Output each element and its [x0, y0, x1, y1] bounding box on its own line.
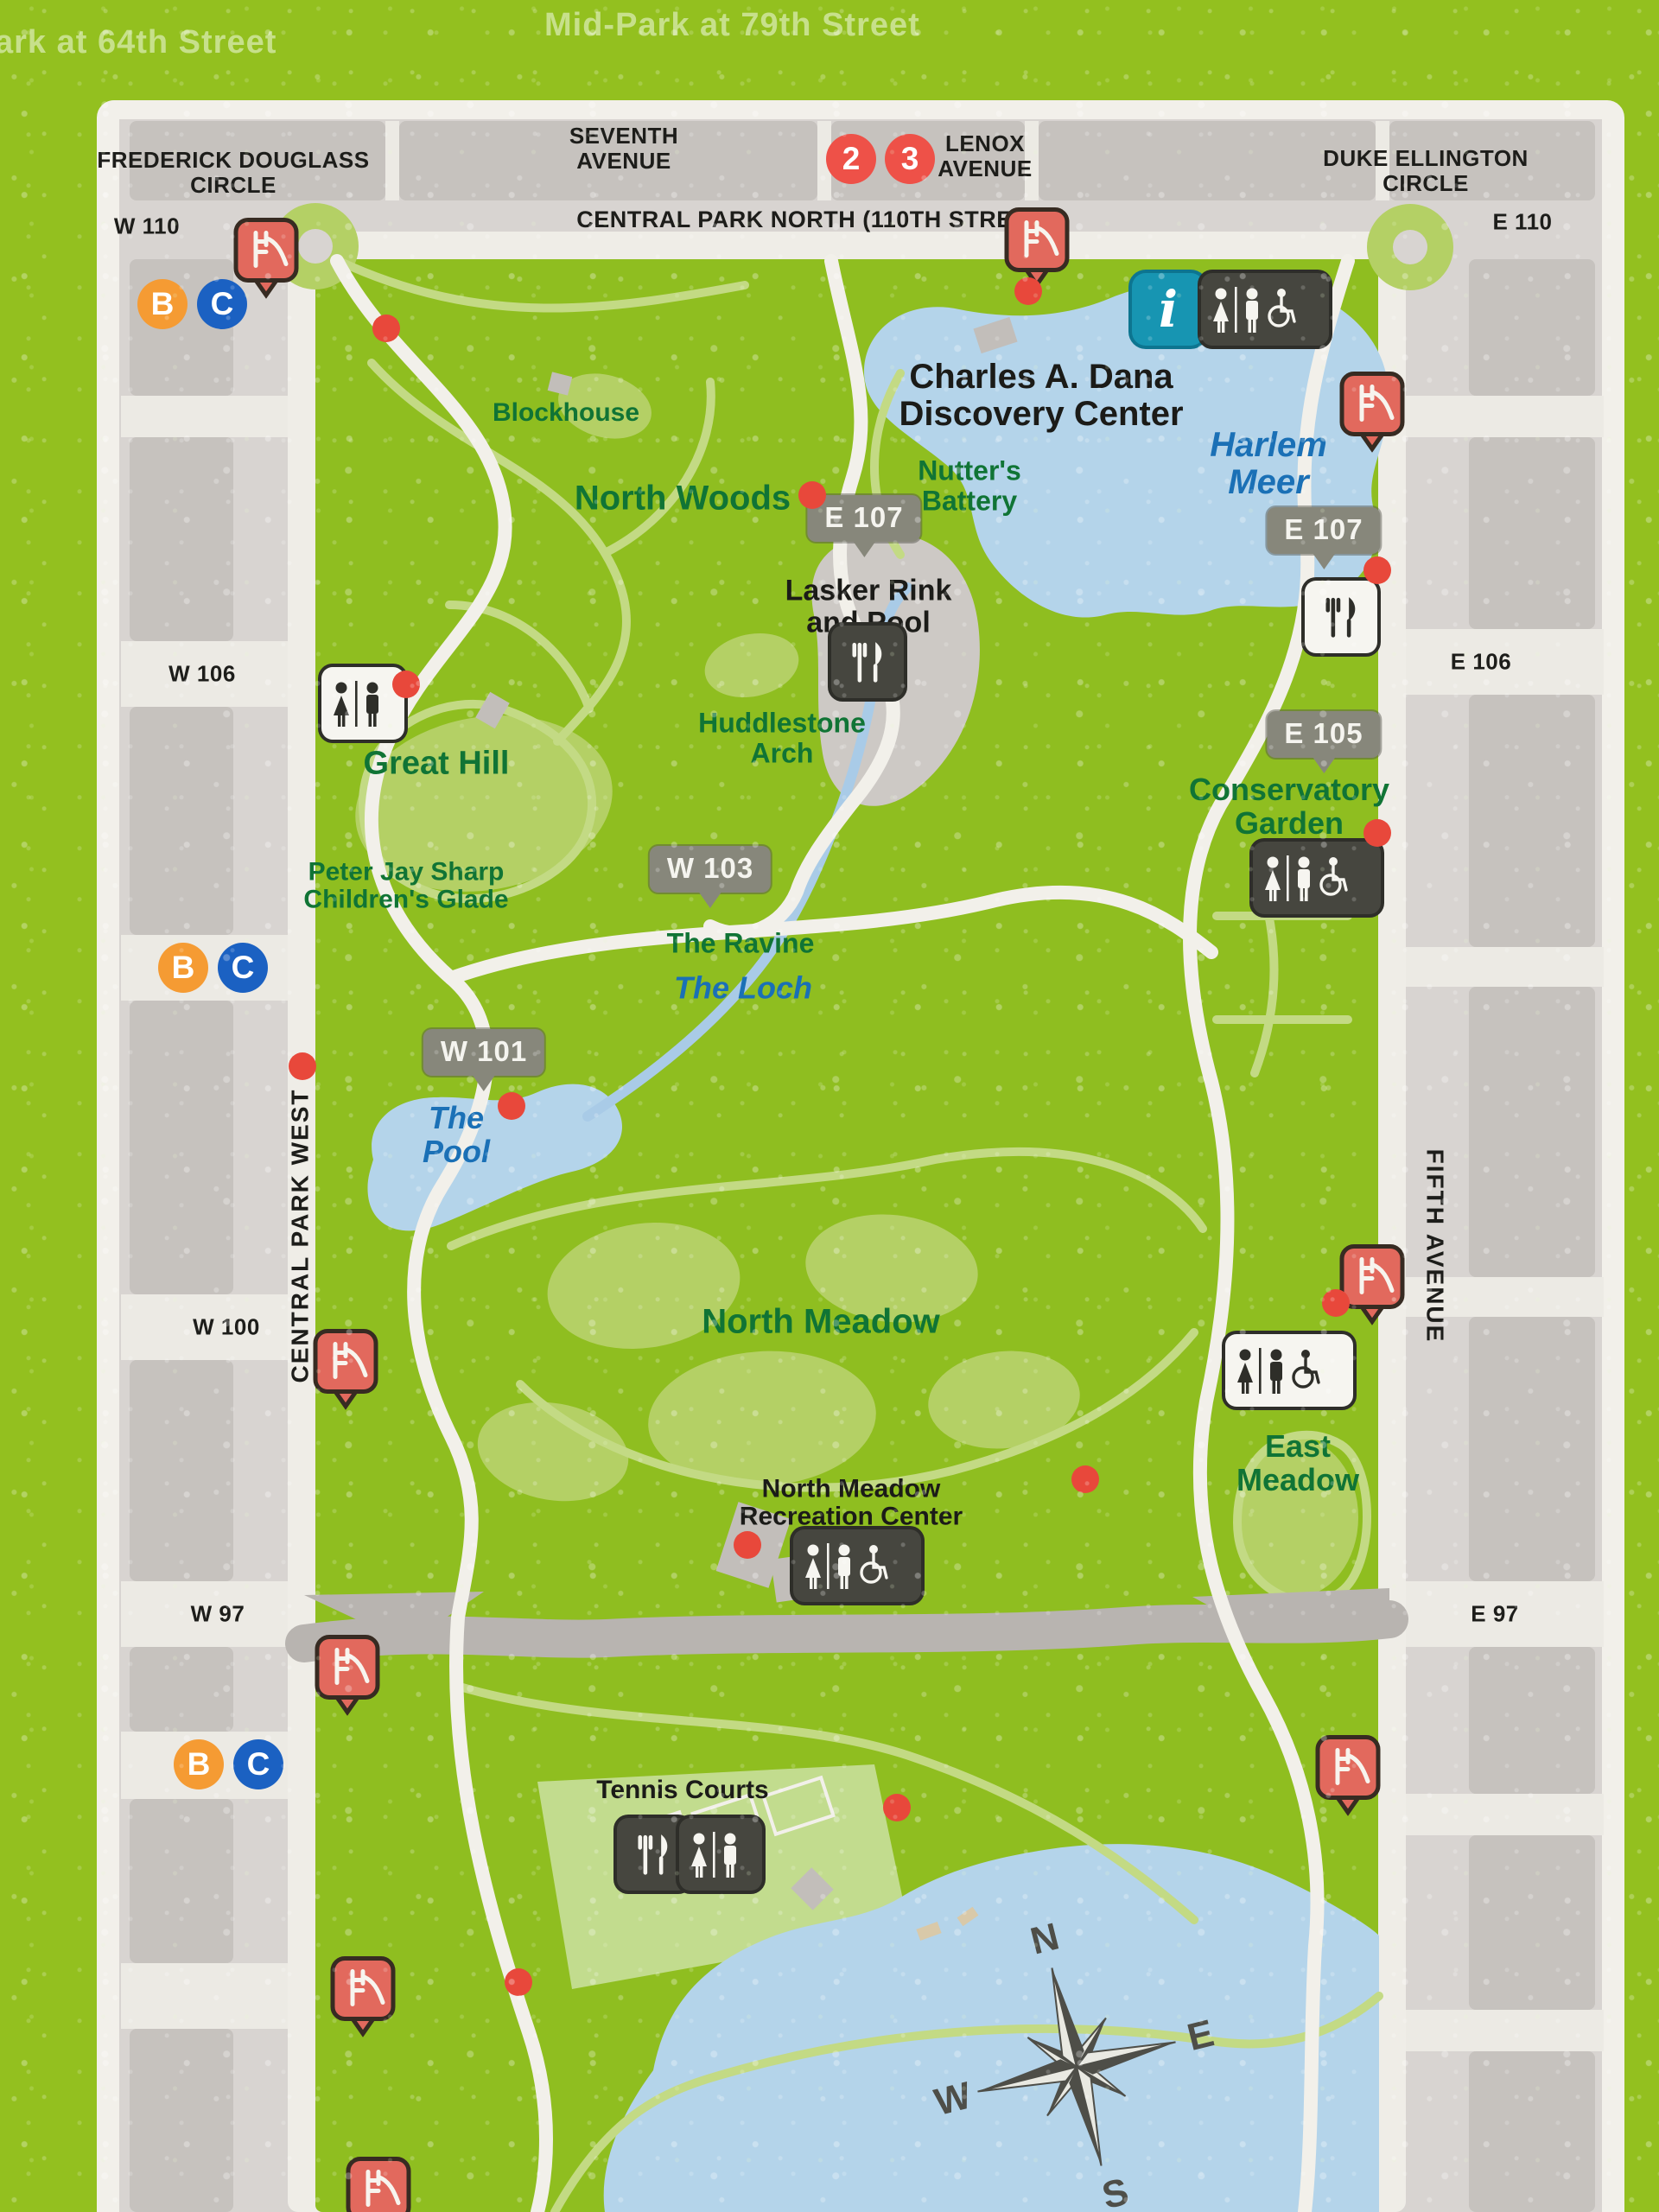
feature-label: North Meadow — [702, 1303, 940, 1340]
svg-text:S: S — [1098, 2171, 1133, 2212]
restroom-icon — [1225, 1334, 1353, 1407]
poi-red-dot — [505, 1968, 532, 1996]
svg-text:E: E — [1183, 2012, 1217, 2059]
playground-icon — [344, 2155, 413, 2212]
street-label: E 110 — [1492, 209, 1552, 234]
street-label: LENOX AVENUE — [938, 131, 1032, 181]
restroom-icon — [793, 1529, 921, 1602]
playground-icon — [311, 1327, 380, 1414]
poi-red-dot — [1014, 277, 1042, 305]
street-label: E 106 — [1451, 649, 1511, 674]
playground-icon — [1002, 206, 1071, 293]
restroom-icon — [679, 1818, 762, 1891]
feature-label: Great Hill — [364, 746, 510, 781]
street-label: FREDERICK DOUGLASS CIRCLE — [97, 148, 369, 198]
street-label: FIFTH AVENUE — [1421, 1149, 1448, 1344]
subway-badge-2: 2 — [826, 134, 876, 184]
street-label: W 100 — [193, 1314, 260, 1339]
street-entrance-pin: W 103 — [650, 846, 771, 893]
feature-label: East Meadow — [1236, 1430, 1359, 1497]
poi-red-dot — [1322, 1289, 1350, 1317]
subway-badge-b: B — [174, 1739, 224, 1789]
poi-red-dot — [372, 315, 400, 342]
street-label: E 97 — [1471, 1601, 1519, 1626]
poi-red-dot — [798, 481, 826, 509]
feature-label: North Meadow Recreation Center — [740, 1476, 963, 1532]
playground-icon — [1338, 370, 1407, 457]
poi-red-dot — [734, 1531, 761, 1559]
feature-label: Charles A. Dana Discovery Center — [899, 359, 1183, 433]
feature-label: The Ravine — [667, 929, 815, 959]
feature-label: Blockhouse — [493, 399, 639, 427]
info-icon: i — [1132, 273, 1205, 346]
poi-red-dot — [883, 1794, 911, 1821]
feature-label: The Loch — [674, 972, 812, 1006]
feature-label: Huddlestone Arch — [698, 708, 866, 767]
feature-label: North Woods — [575, 480, 791, 517]
feature-label: Peter Jay Sharp Children's Glade — [303, 859, 508, 915]
street-entrance-pin: E 107 — [807, 495, 920, 542]
street-entrance-pin: W 101 — [423, 1029, 544, 1076]
playground-icon — [232, 216, 301, 303]
playground-icon — [313, 1633, 382, 1720]
street-label: W 110 — [114, 213, 180, 238]
playground-icon — [328, 1955, 397, 2042]
subway-badge-c: C — [218, 943, 268, 993]
street-label: SEVENTH AVENUE — [569, 124, 678, 174]
street-label: W 106 — [168, 661, 236, 686]
feature-label: Tennis Courts — [596, 1777, 768, 1804]
poi-red-dot — [1363, 819, 1391, 847]
poi-red-dot — [392, 671, 420, 698]
svg-text:N: N — [1027, 1915, 1064, 1962]
street-label: DUKE ELLINGTON CIRCLE — [1323, 146, 1529, 196]
feature-label: Conservatory Garden — [1189, 773, 1389, 841]
subway-badge-c: C — [233, 1739, 283, 1789]
feature-label: The Pool — [423, 1102, 490, 1169]
restroom-icon — [1201, 273, 1329, 346]
street-entrance-pin: E 107 — [1267, 507, 1380, 554]
food-icon — [831, 626, 904, 698]
poi-red-dot — [498, 1092, 525, 1120]
street-label: CENTRAL PARK NORTH (110TH STREET) — [576, 207, 1052, 232]
feature-label: Nutter's Battery — [918, 455, 1021, 515]
playground-icon — [1313, 1733, 1382, 1821]
map-photo: ark at 64th Street Mid-Park at 79th Stre… — [0, 0, 1659, 2212]
poi-red-dot — [1363, 556, 1391, 584]
poi-red-dot — [1071, 1465, 1099, 1493]
subway-badge-b: B — [158, 943, 208, 993]
poi-red-dot — [289, 1052, 316, 1080]
street-entrance-pin: E 105 — [1267, 711, 1380, 758]
food-icon — [1305, 581, 1377, 653]
park-map-graphics — [0, 0, 1659, 2212]
playground-icon — [1338, 1243, 1407, 1330]
subway-badge-b: B — [137, 279, 188, 329]
svg-text:W: W — [931, 2074, 976, 2124]
restroom-icon — [1253, 842, 1381, 914]
street-label: CENTRAL PARK WEST — [286, 1089, 313, 1383]
restroom-icon — [321, 667, 404, 740]
feature-label: Harlem Meer — [1210, 427, 1327, 501]
subway-badge-3: 3 — [885, 134, 935, 184]
street-label: W 97 — [191, 1601, 245, 1626]
